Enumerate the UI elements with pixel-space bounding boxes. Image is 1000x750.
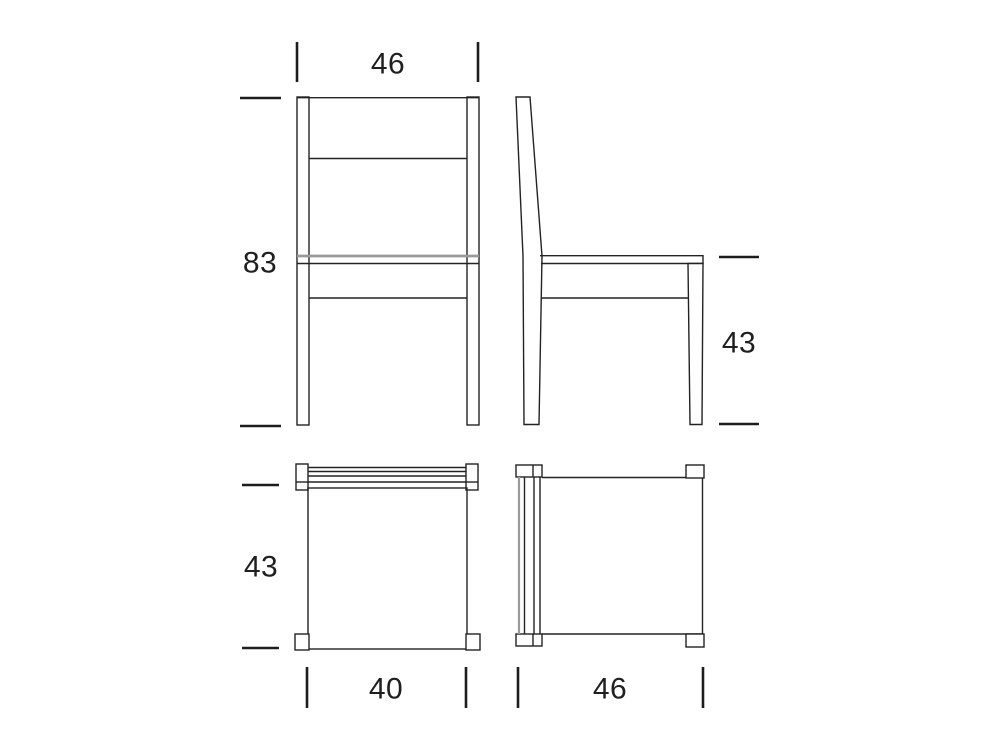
top-front-left-leg (295, 634, 309, 650)
rotated-front-leg-top (686, 465, 704, 478)
rotated-back-post-top (516, 465, 542, 477)
dim-label-side-depth: 46 (593, 673, 627, 706)
top-view-rotated (516, 465, 704, 647)
dim-seat-height: 43 (719, 257, 759, 424)
top-back-left-post (296, 464, 308, 490)
rotated-front-leg-bottom (686, 634, 704, 647)
dim-front-width: 46 (297, 42, 478, 82)
dim-overall-height: 83 (240, 98, 281, 426)
dim-label-front-width: 46 (371, 48, 405, 81)
rotated-seat-outline (542, 478, 703, 635)
top-back-right-post (466, 464, 478, 490)
dim-side-depth: 46 (518, 667, 703, 708)
side-view (516, 97, 703, 425)
dim-label-seat-width: 40 (369, 673, 403, 706)
side-back-post (516, 97, 542, 425)
side-front-leg (688, 264, 703, 425)
top-view (295, 464, 480, 650)
dim-label-top-depth: 43 (244, 551, 278, 584)
top-front-right-leg (466, 634, 480, 650)
top-backrest-lines (308, 468, 466, 483)
chair-dimension-diagram: 46 83 43 (0, 0, 1000, 750)
front-view (297, 97, 479, 425)
side-seat (540, 256, 703, 264)
front-left-leg (297, 97, 309, 425)
dim-seat-width: 40 (307, 667, 466, 708)
dim-top-depth: 43 (242, 485, 279, 648)
rotated-backrest-lines (519, 477, 540, 634)
top-seat-outline (308, 488, 467, 649)
diagram-svg: 46 83 43 (0, 0, 1000, 750)
dim-label-seat-height: 43 (722, 327, 756, 360)
rotated-back-post-bottom (516, 634, 542, 646)
dim-label-overall-height: 83 (243, 247, 277, 280)
front-right-leg (467, 97, 479, 425)
